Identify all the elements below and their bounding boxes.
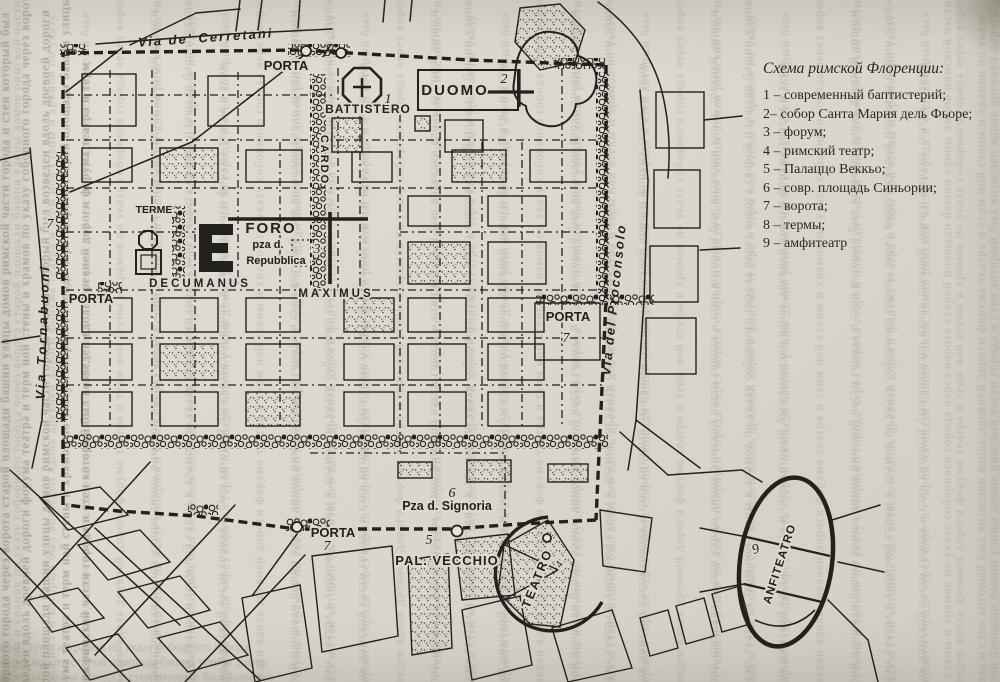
street-line xyxy=(236,0,240,31)
street-label-cardo: CARDO xyxy=(318,135,330,185)
map-number-battistero: 1 xyxy=(385,92,392,107)
building-block xyxy=(352,152,392,182)
gate-marker xyxy=(336,48,346,58)
building-block xyxy=(530,150,586,182)
legend-item: 3 – форум; xyxy=(763,124,989,143)
city-block xyxy=(118,576,210,628)
building-block xyxy=(408,392,466,426)
street-line xyxy=(25,462,150,600)
terme-building xyxy=(139,231,157,249)
building-block xyxy=(408,242,470,284)
building-block xyxy=(82,344,132,380)
place-label-battistero: BATTISTERO xyxy=(325,102,411,116)
building-block xyxy=(488,196,546,226)
legend-item: 4 – римский театр; xyxy=(763,143,989,162)
building-block xyxy=(246,392,300,426)
map-number-porta-right: 7 xyxy=(563,331,571,346)
legend-item: 8 – термы; xyxy=(763,217,989,236)
place-label-porta-left: PORTA xyxy=(69,291,114,306)
building-block xyxy=(415,116,430,131)
building-block xyxy=(408,196,470,226)
teatro-marker xyxy=(543,534,551,542)
building-block xyxy=(246,298,300,332)
street-line xyxy=(95,528,260,680)
cobblestone-band xyxy=(172,206,185,282)
city-block xyxy=(515,4,585,70)
legend-item: 2– собор Санта Мария дель Фьоре; xyxy=(763,106,989,125)
building-block xyxy=(344,392,394,426)
building-block xyxy=(160,148,218,182)
building-block xyxy=(654,170,700,228)
building-block xyxy=(246,344,300,380)
building-block xyxy=(650,246,698,302)
wall-north xyxy=(66,50,300,53)
street-line xyxy=(700,248,740,250)
place-label-repubblica: Repubblica xyxy=(246,255,306,267)
place-label-porta-right: PORTA xyxy=(546,309,591,324)
building-block xyxy=(408,344,466,380)
place-label-pal-vecchio: PAL. VECCHIO xyxy=(395,553,499,568)
anfiteatro-street xyxy=(744,584,822,602)
building-block xyxy=(344,344,394,380)
street-line xyxy=(828,600,868,640)
place-label-foro-pza: pza d. xyxy=(252,239,283,251)
terme-building xyxy=(141,255,156,269)
building-block xyxy=(208,76,264,126)
legend-item: 6 – совр. площадь Синьории; xyxy=(763,180,989,199)
place-label-terme: TERME xyxy=(136,204,173,216)
place-label-porta-top: PORTA xyxy=(264,58,309,73)
city-block xyxy=(676,598,714,644)
city-block xyxy=(600,510,652,572)
map-number-anfiteatro: 9 xyxy=(750,541,761,557)
street-line xyxy=(636,420,700,468)
street-line xyxy=(383,0,385,22)
map-number-porta-bottom: 7 xyxy=(324,539,332,554)
street-line xyxy=(0,548,130,682)
city-block xyxy=(312,546,398,652)
map-number-foro: 3 xyxy=(313,242,321,257)
street-line xyxy=(742,470,762,482)
city-block xyxy=(242,585,312,682)
legend-item: 7 – ворота; xyxy=(763,198,989,217)
street-line xyxy=(298,0,300,28)
street-line xyxy=(832,505,880,520)
place-label-duomo: DUOMO xyxy=(421,82,489,99)
street-line xyxy=(410,0,412,21)
legend-item: 1 – современный баптистерий; xyxy=(763,87,989,106)
place-label-foro: FORO xyxy=(245,220,296,237)
building-block xyxy=(332,118,362,152)
street-line xyxy=(95,505,235,655)
building-block xyxy=(445,120,483,152)
city-block xyxy=(552,610,632,682)
building-block xyxy=(398,462,432,478)
street-line xyxy=(838,562,884,572)
street-line xyxy=(868,640,878,682)
map-number-pal-vecchio: 5 xyxy=(426,533,433,548)
building-block xyxy=(82,392,132,426)
street-line xyxy=(10,470,180,625)
cobblestone-band xyxy=(188,504,218,515)
building-block xyxy=(246,150,302,182)
legend-item: 9 – амфитеатр xyxy=(763,235,989,254)
map-number-porta-left: 7 xyxy=(47,217,55,232)
street-line xyxy=(700,528,742,536)
building-block xyxy=(160,392,218,426)
legend: Схема римской Флоренции: 1 – современный… xyxy=(763,60,989,254)
gate-marker xyxy=(292,522,302,532)
building-block xyxy=(160,298,218,332)
street-line xyxy=(704,116,742,120)
street-line xyxy=(0,153,29,160)
building-block xyxy=(344,298,394,332)
building-block xyxy=(160,344,218,380)
building-block xyxy=(467,460,511,482)
map-number-signoria: 6 xyxy=(449,486,456,501)
street-line xyxy=(185,555,305,682)
city-block xyxy=(28,588,104,632)
street-line xyxy=(628,90,648,470)
street-label-cerretani: Via de' Cerretani xyxy=(138,25,274,49)
scanned-book-page: ной стены и храмов по указу соборного го… xyxy=(0,0,1000,682)
wall-south-west xyxy=(66,505,289,528)
city-block xyxy=(66,634,142,680)
street-label-decumanus: DECUMANUS xyxy=(149,278,251,290)
building-block xyxy=(548,464,588,482)
anfiteatro-inner-arc xyxy=(755,610,815,626)
palazzo-vecchio-marker xyxy=(452,526,463,537)
building-block xyxy=(646,318,696,374)
street-label-tornabuoni: Via Tornabuoni xyxy=(33,264,53,400)
map-number-duomo: 2 xyxy=(501,72,508,87)
place-label-porta-bottom: PORTA xyxy=(311,525,356,540)
city-block xyxy=(640,610,678,656)
legend-title: Схема римской Флоренции: xyxy=(763,60,989,78)
building-block xyxy=(408,298,466,332)
building-block xyxy=(82,74,136,126)
building-block xyxy=(488,242,546,284)
city-block xyxy=(408,554,452,655)
street-label-maximus: MAXIMUS xyxy=(298,288,373,300)
legend-item: 5 – Палаццо Веккьо; xyxy=(763,161,989,180)
forum-temple xyxy=(199,224,233,272)
street-line xyxy=(196,9,240,13)
cobblestone-band xyxy=(62,434,608,449)
building-block xyxy=(488,392,544,426)
street-line xyxy=(668,470,742,475)
building-block xyxy=(452,150,506,182)
place-label-signoria: Pza d. Signoria xyxy=(402,499,493,513)
gate-marker xyxy=(301,46,311,56)
terme-building xyxy=(136,250,161,274)
